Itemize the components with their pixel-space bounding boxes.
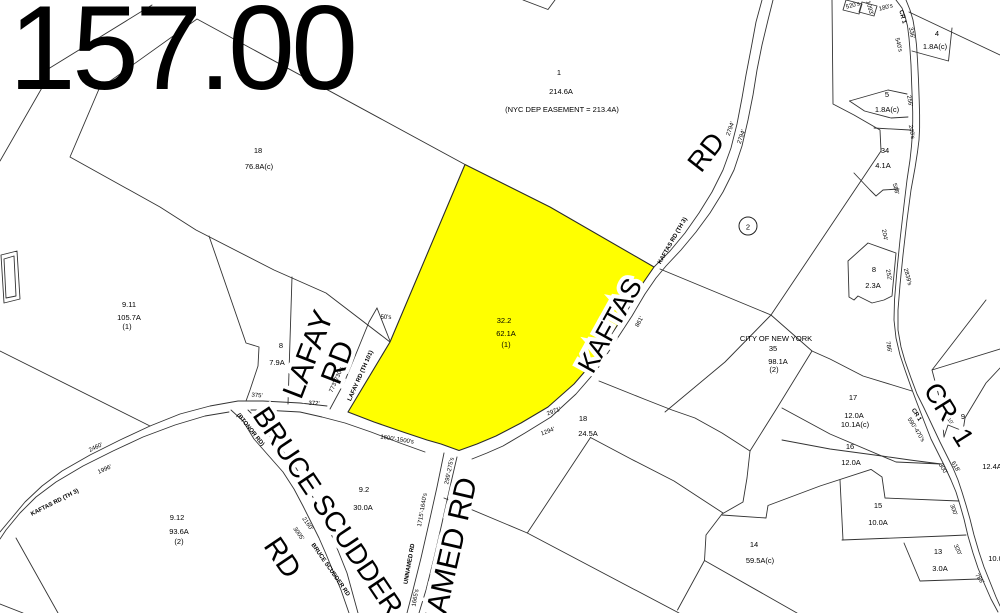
svg-text:(NYC DEP EASEMENT = 213.4A): (NYC DEP EASEMENT = 213.4A) [505, 105, 619, 114]
svg-text:375': 375' [251, 393, 263, 400]
svg-text:(1): (1) [122, 322, 132, 331]
svg-text:14: 14 [750, 540, 758, 549]
svg-text:8: 8 [872, 265, 876, 274]
svg-text:16: 16 [846, 442, 854, 451]
svg-text:10.0A: 10.0A [868, 518, 888, 527]
svg-text:76.8A(c): 76.8A(c) [245, 162, 274, 171]
svg-text:24.5A: 24.5A [578, 429, 598, 438]
svg-text:9.11: 9.11 [122, 300, 136, 309]
svg-text:17: 17 [849, 393, 857, 402]
svg-text:372': 372' [308, 401, 319, 408]
svg-text:15: 15 [874, 501, 882, 510]
svg-text:1.8A(c): 1.8A(c) [875, 105, 900, 114]
svg-text:(1): (1) [501, 340, 511, 349]
svg-text:(2): (2) [174, 537, 184, 546]
svg-text:18: 18 [254, 146, 262, 155]
svg-text:214.6A: 214.6A [549, 87, 573, 96]
svg-text:9.2: 9.2 [359, 485, 369, 494]
svg-text:59.5A(c): 59.5A(c) [746, 556, 775, 565]
svg-text:93.6A: 93.6A [169, 527, 189, 536]
svg-text:50's: 50's [381, 315, 392, 321]
svg-text:12.4A: 12.4A [982, 462, 1000, 471]
svg-text:(2): (2) [769, 365, 779, 374]
svg-text:30.0A: 30.0A [353, 503, 373, 512]
svg-text:5: 5 [885, 90, 889, 99]
svg-text:12.0A: 12.0A [841, 458, 861, 467]
svg-text:10.0A: 10.0A [988, 554, 1000, 563]
svg-text:18: 18 [579, 414, 587, 423]
svg-text:CITY OF NEW YORK: CITY OF NEW YORK [740, 334, 812, 343]
svg-text:4.1A: 4.1A [875, 161, 890, 170]
svg-text:12.0A: 12.0A [844, 411, 864, 420]
svg-text:1.8A(c): 1.8A(c) [923, 42, 948, 51]
svg-text:1: 1 [557, 68, 561, 77]
svg-text:10.1A(c): 10.1A(c) [841, 420, 870, 429]
svg-text:2.3A: 2.3A [865, 281, 880, 290]
svg-text:7.9A: 7.9A [269, 358, 284, 367]
svg-text:32.2: 32.2 [497, 316, 512, 325]
svg-text:34: 34 [881, 146, 889, 155]
svg-text:62.1A: 62.1A [496, 329, 516, 338]
svg-text:8: 8 [279, 341, 283, 350]
svg-text:35: 35 [769, 344, 777, 353]
svg-text:9.12: 9.12 [170, 513, 185, 522]
svg-text:3.0A: 3.0A [932, 564, 947, 573]
svg-text:2: 2 [746, 223, 750, 232]
svg-text:9: 9 [961, 412, 965, 421]
svg-text:13: 13 [934, 547, 942, 556]
svg-text:105.7A: 105.7A [117, 313, 141, 322]
svg-text:157.00: 157.00 [9, 0, 354, 115]
svg-text:4: 4 [935, 29, 939, 38]
